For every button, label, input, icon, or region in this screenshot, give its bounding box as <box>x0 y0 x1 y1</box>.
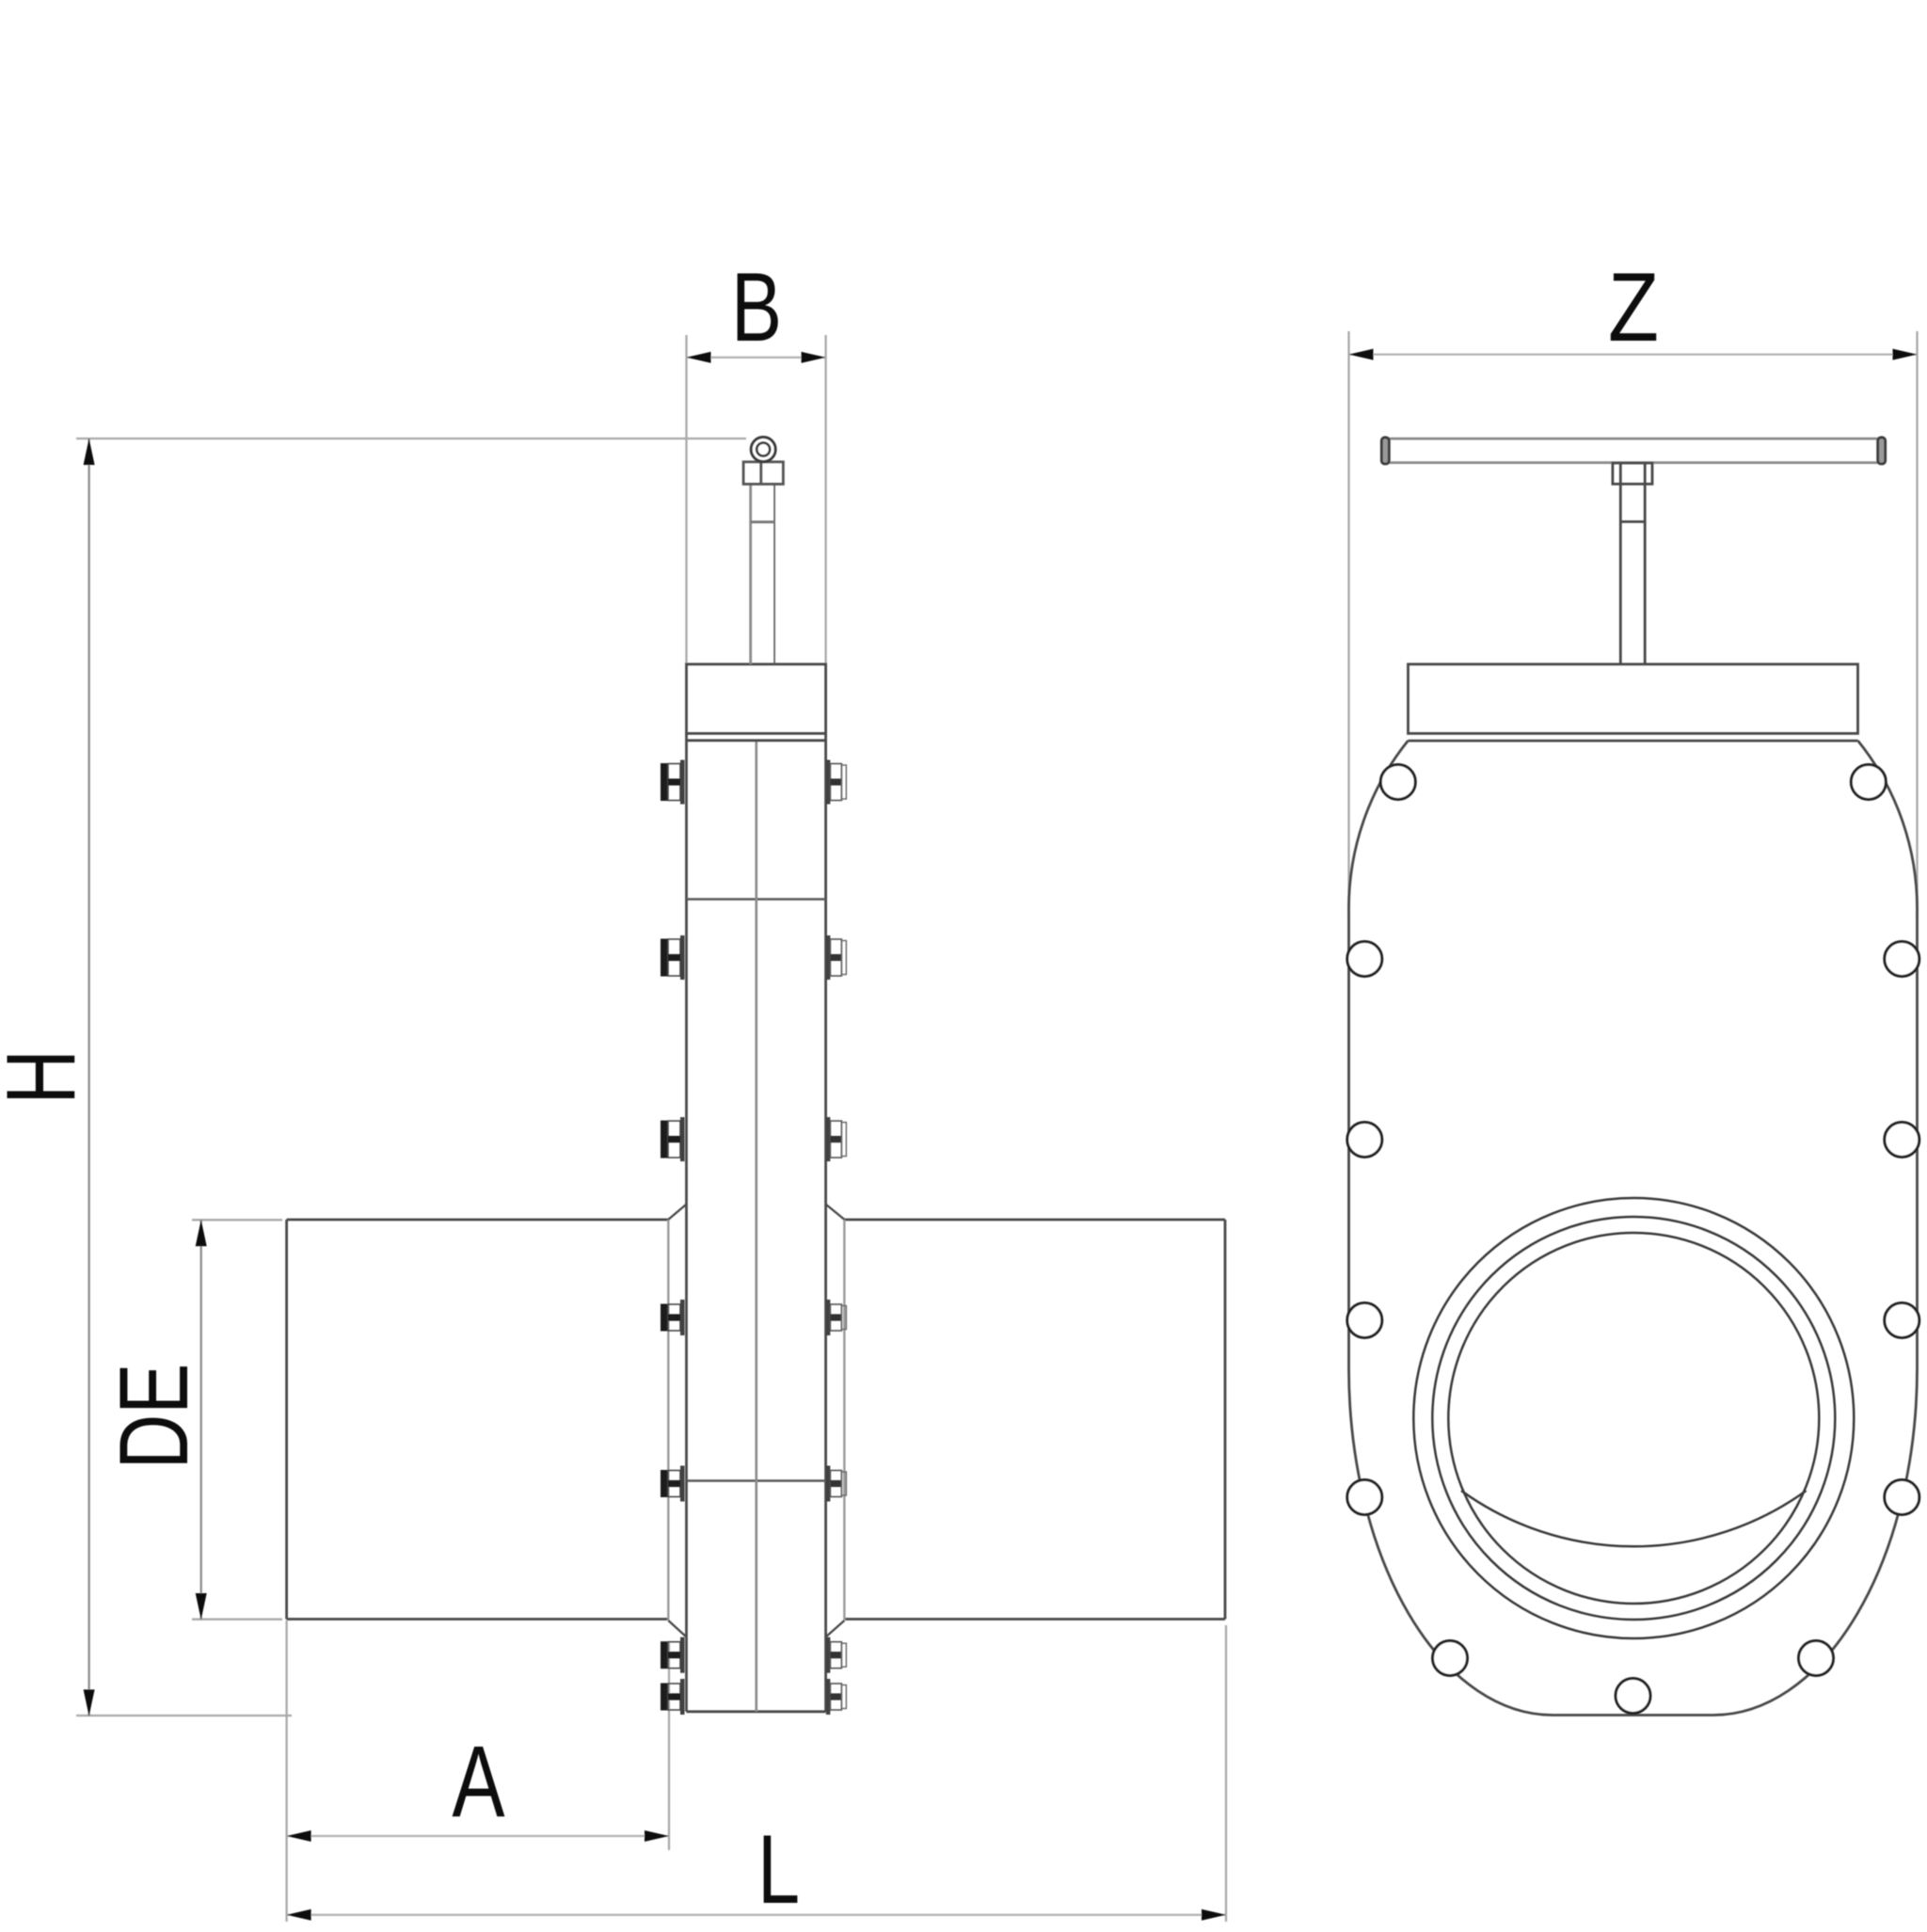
svg-text:A: A <box>452 1724 505 1839</box>
svg-text:DE: DE <box>99 1364 208 1470</box>
svg-text:H: H <box>0 1049 95 1105</box>
svg-text:Z: Z <box>1608 253 1659 361</box>
svg-text:B: B <box>731 252 782 361</box>
svg-text:L: L <box>757 1814 800 1924</box>
